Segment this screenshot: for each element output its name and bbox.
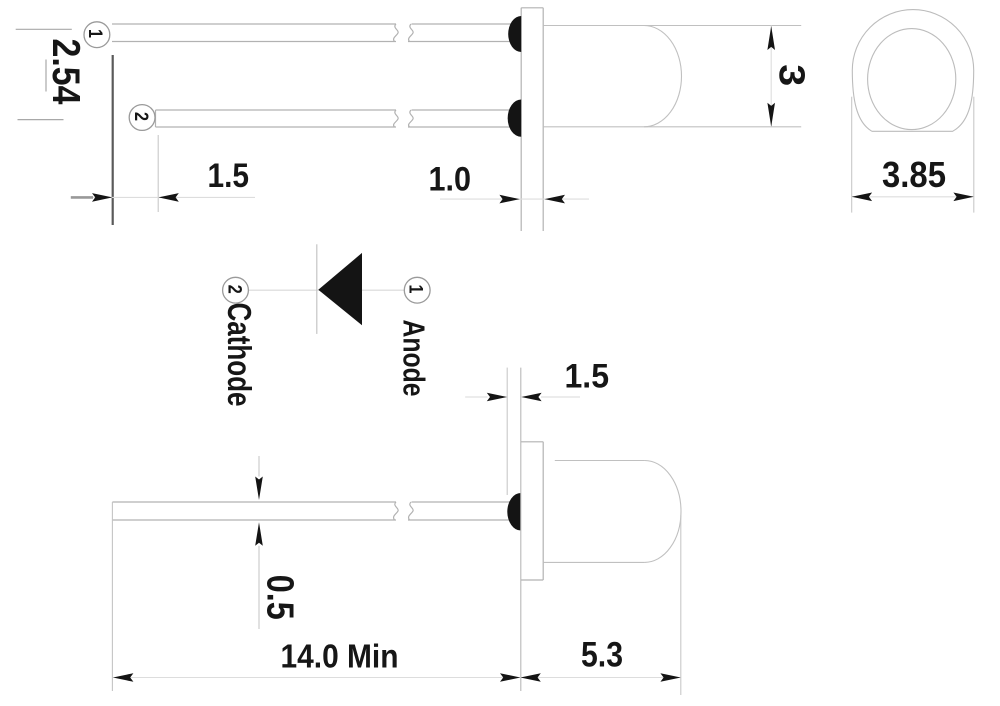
svg-text:5.3: 5.3 xyxy=(581,636,623,675)
svg-text:1.0: 1.0 xyxy=(429,161,472,199)
svg-text:2: 2 xyxy=(130,112,151,121)
svg-text:Cathode: Cathode xyxy=(221,303,258,407)
svg-text:3: 3 xyxy=(772,64,813,86)
svg-text:0.5: 0.5 xyxy=(259,575,301,620)
svg-text:Anode: Anode xyxy=(397,320,432,397)
svg-text:2.54: 2.54 xyxy=(44,39,87,105)
svg-text:1.5: 1.5 xyxy=(208,157,250,195)
svg-text:2: 2 xyxy=(224,285,245,294)
svg-text:1: 1 xyxy=(405,285,426,294)
svg-text:1.5: 1.5 xyxy=(565,357,610,395)
svg-text:3.85: 3.85 xyxy=(882,154,946,195)
svg-text:1: 1 xyxy=(84,29,105,38)
svg-text:14.0 Min: 14.0 Min xyxy=(281,637,399,674)
